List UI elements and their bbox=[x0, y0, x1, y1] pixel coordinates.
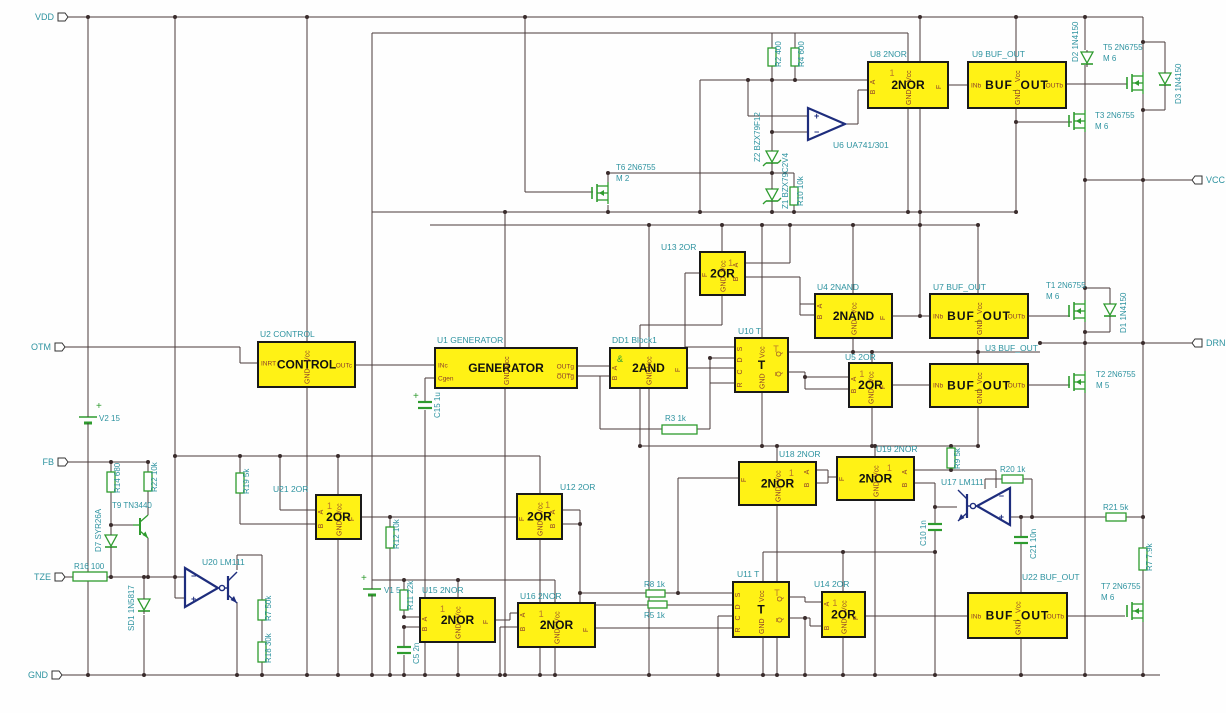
mosfet-ref-label: T1 2N6755 bbox=[1046, 281, 1086, 290]
pin-label-vcc: Vcc bbox=[538, 502, 545, 514]
block-mark: 1 bbox=[440, 604, 445, 614]
pin-label: B bbox=[851, 388, 858, 393]
diode-triangle[interactable] bbox=[766, 151, 778, 162]
mosfet-ref-label: T7 2N6755 bbox=[1101, 582, 1141, 591]
resistor-r19-5k[interactable]: R19 5k bbox=[236, 468, 251, 494]
resistor-label: R7 7.9k bbox=[1145, 542, 1154, 571]
pin-label-gnd: GND bbox=[337, 520, 344, 536]
mosfet-arrow bbox=[1134, 80, 1139, 86]
pin-label-gnd: GND bbox=[1016, 619, 1023, 635]
block-ref-label: U18 2NOR bbox=[779, 449, 821, 459]
resistor-r22-10k[interactable]: R22 10k bbox=[144, 461, 159, 492]
pin-label: B bbox=[870, 89, 877, 94]
capacitor-c21-10n[interactable]: C21 10n bbox=[1014, 529, 1038, 559]
junction-dot bbox=[370, 673, 374, 677]
junction-dot bbox=[305, 673, 309, 677]
diode-d3-1n4150[interactable]: D3 1N4150 bbox=[1159, 63, 1183, 104]
mosfet-pkg-label: M 6 bbox=[1095, 122, 1109, 131]
pin-label-vcc: Vcc bbox=[1015, 70, 1022, 82]
pin-label-gnd: GND bbox=[874, 481, 881, 497]
pin-label-vcc: Vcc bbox=[842, 600, 849, 612]
block-ref-label: U12 2OR bbox=[560, 482, 595, 492]
diode-label: D1 1N4150 bbox=[1119, 292, 1128, 333]
resistor-r16-100[interactable]: R16 100 bbox=[73, 562, 107, 581]
diode-label: D3 1N4150 bbox=[1174, 63, 1183, 104]
pin-label: F bbox=[880, 316, 887, 320]
diode-d2-1n4150[interactable]: D2 1N4150 bbox=[1071, 21, 1093, 67]
block-u16-2nor[interactable]: U16 2NOR2NORVccGND1ABF bbox=[518, 591, 595, 647]
pin-label: B bbox=[902, 482, 909, 487]
junction-dot bbox=[109, 575, 113, 579]
port-fb[interactable]: FB bbox=[42, 457, 68, 467]
mosfet-arrow bbox=[1076, 308, 1081, 314]
pin-label: A bbox=[870, 79, 877, 84]
resistor-label: R10 10k bbox=[796, 175, 805, 206]
junction-dot bbox=[716, 673, 720, 677]
pin-label: F bbox=[741, 478, 748, 482]
amp-u17-lm111[interactable]: −+U17 LM111 bbox=[941, 477, 1010, 525]
resistor-r12-10k[interactable]: R12 10k bbox=[386, 518, 401, 549]
capacitor-c10-1n[interactable]: C10 1n bbox=[919, 520, 942, 546]
pin-label: INc bbox=[438, 363, 449, 370]
resistor-body[interactable] bbox=[1002, 475, 1023, 483]
diode-label: Z2 BZX79F12 bbox=[753, 112, 762, 162]
block-mark: 1 bbox=[889, 68, 894, 78]
block-u9-buf-out[interactable]: U9 BUF_OUTBUF_OUTVccGNDINbOUTb bbox=[968, 49, 1066, 108]
block-u19-2nor[interactable]: U19 2NOR2NORVccGND1FAB bbox=[837, 444, 918, 500]
resistor-r4-600[interactable]: R4 600 bbox=[791, 41, 806, 67]
mosfet-pkg-label: M 6 bbox=[1101, 593, 1115, 602]
diode-triangle[interactable] bbox=[1159, 73, 1171, 84]
diode-triangle[interactable] bbox=[138, 599, 150, 610]
pin-label-vcc: Vcc bbox=[555, 611, 562, 623]
pin-label: B bbox=[318, 523, 325, 528]
junction-dot bbox=[86, 15, 90, 19]
junction-dot bbox=[456, 673, 460, 677]
pin-label: A bbox=[804, 469, 811, 474]
junction-dot bbox=[1141, 673, 1145, 677]
block-u11-t[interactable]: U11 TTVccGNDTSDCRQQ̅ bbox=[733, 569, 789, 637]
amp-triangle[interactable] bbox=[977, 488, 1010, 525]
block-mark: 1 bbox=[859, 369, 864, 379]
junction-dot bbox=[1083, 330, 1087, 334]
port-drn[interactable]: DRN bbox=[1192, 338, 1226, 348]
mosfet-arrow bbox=[599, 190, 604, 196]
resistor-r8-1k[interactable]: R8 1k bbox=[644, 580, 666, 597]
junction-dot bbox=[1083, 341, 1087, 345]
pin-label: A bbox=[824, 601, 831, 606]
resistor-label: R18 30k bbox=[264, 632, 273, 663]
resistor-r3-1k[interactable]: R3 1k bbox=[662, 414, 697, 434]
port-otm[interactable]: OTM bbox=[31, 342, 65, 352]
plus-sign: + bbox=[361, 573, 367, 584]
block-u7-buf-out[interactable]: U7 BUF_OUTBUF_OUTVccGNDINbOUTb bbox=[930, 282, 1028, 338]
block-title: T bbox=[758, 358, 766, 372]
junction-dot bbox=[933, 550, 937, 554]
resistor-body[interactable] bbox=[73, 572, 107, 581]
capacitor-label: C15 1u bbox=[433, 392, 442, 418]
diode-triangle[interactable] bbox=[1081, 52, 1093, 63]
resistor-label: R7 50k bbox=[264, 595, 273, 621]
junction-dot bbox=[770, 171, 774, 175]
junction-dot bbox=[402, 625, 406, 629]
pin-label: F bbox=[936, 85, 943, 89]
block-ref-label: U7 BUF_OUT bbox=[933, 282, 986, 292]
bjt-label: T9 TN3440 bbox=[112, 501, 152, 510]
resistor-label: R19 5k bbox=[242, 468, 251, 494]
pin-label-vcc: Vcc bbox=[852, 302, 859, 314]
junction-dot bbox=[976, 350, 980, 354]
junction-dot bbox=[775, 444, 779, 448]
capacitor-label: C10 1n bbox=[919, 520, 928, 546]
port-symbol[interactable] bbox=[52, 671, 62, 679]
pin-label: OUTb bbox=[1047, 614, 1065, 621]
capacitor-label: C5 2n bbox=[412, 643, 421, 664]
pin-label-gnd: GND bbox=[977, 388, 984, 404]
block-u4-2nand[interactable]: U4 2NAND2NANDVccGNDABF bbox=[815, 282, 892, 338]
junction-dot bbox=[1141, 341, 1145, 345]
port-symbol[interactable] bbox=[58, 13, 68, 21]
pin-label: C bbox=[737, 369, 744, 374]
block-ref-label: DD1 Block1 bbox=[612, 335, 657, 345]
mosfet-arrow bbox=[1076, 379, 1081, 385]
diode-label: Z1 BZX79C2V4 bbox=[781, 152, 790, 209]
diode-d1-1n4150[interactable]: D1 1N4150 bbox=[1104, 292, 1128, 333]
mosfet-t5-2n6755[interactable]: T5 2N6755M 6 bbox=[1103, 43, 1143, 94]
bjt-t9-tn3440[interactable]: T9 TN3440 bbox=[112, 501, 152, 538]
resistor-r7-7-9k[interactable]: R7 7.9k bbox=[1139, 542, 1154, 571]
junction-dot bbox=[918, 314, 922, 318]
resistor-body[interactable] bbox=[648, 601, 667, 608]
block-mark: 1 bbox=[887, 463, 892, 473]
junction-dot bbox=[708, 356, 712, 360]
pin-label: A bbox=[612, 365, 619, 370]
resistor-label: R4 600 bbox=[797, 41, 806, 67]
block-ref-label: U14 2OR bbox=[814, 579, 849, 589]
resistor-r2-400[interactable]: R2 400 bbox=[768, 41, 783, 67]
port-symbol[interactable] bbox=[55, 573, 65, 581]
junction-dot bbox=[918, 210, 922, 214]
port-label: FB bbox=[42, 457, 54, 467]
junction-dot bbox=[803, 375, 807, 379]
svg-text:−: − bbox=[191, 571, 196, 581]
pin-label-gnd: GND bbox=[776, 486, 783, 502]
pin-label-gnd: GND bbox=[1015, 89, 1022, 105]
pin-label: D bbox=[735, 604, 742, 609]
pin-label: D bbox=[737, 357, 744, 362]
port-vdd[interactable]: VDD bbox=[35, 12, 68, 22]
mosfet-t6-2n6755[interactable]: T6 2N6755M 2 bbox=[592, 163, 656, 204]
mosfet-pkg-label: M 2 bbox=[616, 174, 630, 183]
block-u3-buf-out[interactable]: U3 BUF_OUTBUF_OUTVccGNDINbOUTb bbox=[930, 343, 1038, 407]
port-tze[interactable]: TZE bbox=[34, 572, 65, 582]
resistor-label: R11 22k bbox=[406, 580, 415, 610]
pin-label-vcc: Vcc bbox=[869, 371, 876, 383]
junction-dot bbox=[976, 444, 980, 448]
pin-label: Q bbox=[776, 351, 783, 357]
pin-label: B bbox=[824, 625, 831, 630]
junction-dot bbox=[173, 454, 177, 458]
block-u5-2or[interactable]: U5 2OR2ORVccGND1ABF bbox=[845, 352, 892, 407]
svg-text:+: + bbox=[814, 111, 819, 121]
battery-label: V1 5 bbox=[384, 586, 401, 595]
pin-label: OUTg bbox=[557, 364, 575, 371]
junction-dot bbox=[503, 210, 507, 214]
diode-d7-syr26a[interactable]: D7 SYR26A bbox=[94, 508, 117, 552]
resistor-body[interactable] bbox=[1106, 513, 1126, 521]
junction-dot bbox=[336, 673, 340, 677]
mosfet-pkg-label: M 5 bbox=[1096, 381, 1110, 390]
resistor-label: R20 1k bbox=[1000, 465, 1026, 474]
diode-label: D2 1N4150 bbox=[1071, 21, 1080, 62]
junction-dot bbox=[1141, 178, 1145, 182]
resistor-r14-680[interactable]: R14 680 bbox=[107, 462, 122, 493]
port-symbol[interactable] bbox=[55, 343, 65, 351]
resistor-label: R3 1k bbox=[665, 414, 687, 423]
battery-v2-15[interactable]: +V2 15 bbox=[79, 401, 120, 428]
pin-label-vcc: Vcc bbox=[776, 470, 783, 482]
junction-dot bbox=[918, 223, 922, 227]
junction-dot bbox=[770, 130, 774, 134]
junction-dot bbox=[851, 223, 855, 227]
schematic-canvas: VDDOTMFBTZEGNDVCCDRNU8 2NOR2NORVccGND1AB… bbox=[0, 0, 1226, 713]
junction-dot bbox=[792, 210, 796, 214]
pin-label: S bbox=[735, 592, 742, 597]
junction-dot bbox=[760, 223, 764, 227]
resistor-r18-30k[interactable]: R18 30k bbox=[258, 632, 273, 663]
junction-dot bbox=[933, 505, 937, 509]
junction-dot bbox=[647, 223, 651, 227]
resistor-label: R12 10k bbox=[392, 518, 401, 549]
junction-dot bbox=[1014, 120, 1018, 124]
junction-dot bbox=[388, 515, 392, 519]
pin-label-vcc: Vcc bbox=[906, 70, 913, 82]
port-label: GND bbox=[28, 670, 49, 680]
block-ref-label: U3 BUF_OUT bbox=[985, 343, 1038, 353]
junction-dot bbox=[498, 673, 502, 677]
junction-dot bbox=[538, 673, 542, 677]
pin-label: B bbox=[733, 276, 740, 281]
junction-dot bbox=[676, 591, 680, 595]
schematic-svg: VDDOTMFBTZEGNDVCCDRNU8 2NOR2NORVccGND1AB… bbox=[0, 0, 1226, 713]
pin-label: OUTb bbox=[1008, 314, 1026, 321]
resistor-label: R8 1k bbox=[644, 580, 666, 589]
pin-label: B bbox=[550, 523, 557, 528]
amp-label: U17 LM111 bbox=[941, 477, 984, 487]
resistor-r21-5k[interactable]: R21 5k bbox=[1103, 503, 1129, 521]
junction-dot bbox=[746, 78, 750, 82]
junction-dot bbox=[770, 78, 774, 82]
mosfet-arrow bbox=[1076, 118, 1081, 124]
resistor-r10-10k[interactable]: R10 10k bbox=[790, 175, 805, 206]
pin-label-gnd: GND bbox=[555, 628, 562, 644]
block-u18-2nor[interactable]: U18 2NOR2NORVccGND1FAB bbox=[739, 449, 821, 505]
junction-dot bbox=[1038, 341, 1042, 345]
junction-dot bbox=[793, 78, 797, 82]
pin-label-vcc: Vcc bbox=[759, 590, 766, 602]
mosfet-pkg-label: M 6 bbox=[1046, 292, 1060, 301]
junction-dot bbox=[720, 223, 724, 227]
junction-dot bbox=[109, 523, 113, 527]
amp-triangle[interactable] bbox=[185, 568, 218, 607]
port-vcc[interactable]: VCC bbox=[1192, 175, 1226, 185]
mosfet-arrow bbox=[1134, 608, 1139, 614]
block-u21-2or[interactable]: U21 2OR2ORVccGND1ABF bbox=[273, 484, 361, 539]
port-symbol[interactable] bbox=[1192, 176, 1202, 184]
capacitor-c5-2n[interactable]: C5 2n bbox=[397, 643, 421, 664]
junction-dot bbox=[1030, 515, 1034, 519]
diode-sd1-1n5817[interactable]: SD1 1N5817 bbox=[127, 585, 150, 631]
port-label: VCC bbox=[1206, 175, 1226, 185]
pin-label-vcc: Vcc bbox=[977, 302, 984, 314]
junction-dot bbox=[578, 591, 582, 595]
mosfet-ref-label: T2 2N6755 bbox=[1096, 370, 1136, 379]
block-ref-label: U11 T bbox=[737, 569, 759, 579]
junction-dot bbox=[761, 673, 765, 677]
block-dd1-block1[interactable]: DD1 Block12ANDVccGND&ABF bbox=[610, 335, 687, 388]
pin-label: INRT bbox=[261, 361, 276, 368]
resistor-label: R21 5k bbox=[1103, 503, 1129, 512]
diode-label: SD1 1N5817 bbox=[127, 585, 136, 631]
block-ref-label: U9 BUF_OUT bbox=[972, 49, 1025, 59]
pin-label-gnd: GND bbox=[305, 368, 312, 384]
port-symbol[interactable] bbox=[58, 458, 68, 466]
resistor-r20-1k[interactable]: R20 1k bbox=[1000, 465, 1026, 483]
junction-dot bbox=[503, 673, 507, 677]
svg-text:+: + bbox=[999, 512, 1004, 522]
block-u12-2or[interactable]: U12 2OR2ORVccGND1FAB bbox=[517, 482, 595, 539]
junction-dot bbox=[841, 550, 845, 554]
junction-dot bbox=[976, 223, 980, 227]
amp-u6-ua741-301[interactable]: +−U6 UA741/301 bbox=[808, 108, 889, 150]
pin-label-gnd: GND bbox=[760, 373, 767, 389]
block-ref-label: U2 CONTROL bbox=[260, 329, 315, 339]
pin-label-gnd: GND bbox=[456, 623, 463, 639]
resistor-label: R16 100 bbox=[74, 562, 105, 571]
battery-v1-5[interactable]: +V1 5 bbox=[361, 573, 401, 600]
block-ref-label: U16 2NOR bbox=[520, 591, 562, 601]
junction-dot bbox=[638, 444, 642, 448]
block-mark: 1 bbox=[539, 609, 544, 619]
resistor-label: R2 400 bbox=[774, 41, 783, 67]
port-symbol[interactable] bbox=[1192, 339, 1202, 347]
pin-label: C bbox=[735, 615, 742, 620]
resistor-label: R14 680 bbox=[113, 462, 122, 493]
junction-dot bbox=[423, 673, 427, 677]
capacitor-label: C21 10n bbox=[1029, 529, 1038, 559]
pin-label: A bbox=[902, 469, 909, 474]
block-u1-generator[interactable]: U1 GENERATORGENERATORVccGNDINcCgenOUTgO̅… bbox=[435, 335, 577, 388]
pin-label: Q̅ bbox=[776, 617, 784, 623]
pin-label: B bbox=[520, 626, 527, 631]
svg-text:−: − bbox=[814, 127, 819, 137]
block-u13-2or[interactable]: U13 2OR2ORVccGND1FAB bbox=[661, 242, 745, 295]
pin-label: INb bbox=[971, 83, 982, 90]
pin-label: F bbox=[349, 517, 356, 521]
block-ref-label: U13 2OR bbox=[661, 242, 696, 252]
bjt-arrow bbox=[143, 532, 149, 539]
mosfet-t2-2n6755[interactable]: T2 2N6755M 5 bbox=[1069, 370, 1136, 393]
block-u15-2nor[interactable]: U15 2NOR2NORVccGND1ABF bbox=[420, 585, 495, 642]
pin-label: R bbox=[737, 382, 744, 387]
diode-triangle[interactable] bbox=[105, 535, 117, 546]
block-u2-control[interactable]: U2 CONTROLCONTROLVccGNDINRTOUTc bbox=[258, 329, 355, 387]
pin-label: F bbox=[519, 517, 526, 521]
pin-label: B bbox=[804, 482, 811, 487]
mosfet-t3-2n6755[interactable]: T3 2N6755M 6 bbox=[1069, 110, 1135, 132]
resistor-r11-22k[interactable]: R11 22k bbox=[400, 580, 415, 610]
pin-label-gnd: GND bbox=[647, 369, 654, 385]
block-ref-label: U15 2NOR bbox=[422, 585, 464, 595]
pin-label-vcc: Vcc bbox=[721, 260, 728, 272]
plus-sign: + bbox=[96, 401, 102, 412]
pin-label: A bbox=[520, 612, 527, 617]
block-u22-buf-out[interactable]: U22 BUF_OUTBUF_OUTVccGNDINbOUTb bbox=[968, 572, 1080, 638]
capacitor-c15-1u[interactable]: +C15 1u bbox=[413, 391, 442, 418]
junction-dot bbox=[1141, 515, 1145, 519]
diode-triangle[interactable] bbox=[1104, 304, 1116, 315]
junction-dot bbox=[1083, 15, 1087, 19]
block-u14-2or[interactable]: U14 2OR2ORVccGND1ABF bbox=[814, 579, 865, 637]
block-mark: & bbox=[617, 354, 623, 364]
block-mark: 1 bbox=[545, 500, 550, 510]
pin-label: F bbox=[483, 620, 490, 624]
resistor-r7-50k[interactable]: R7 50k bbox=[258, 595, 273, 621]
block-ref-label: U22 BUF_OUT bbox=[1022, 572, 1080, 582]
mosfet-pkg-label: M 6 bbox=[1103, 54, 1117, 63]
pin-label: O̅U̅T̅g̅ bbox=[557, 373, 575, 381]
resistor-body[interactable] bbox=[662, 425, 697, 434]
junction-dot bbox=[1014, 210, 1018, 214]
block-title: T bbox=[757, 603, 765, 617]
junction-dot bbox=[402, 615, 406, 619]
junction-dot bbox=[698, 210, 702, 214]
pin-label: OUTb bbox=[1046, 83, 1064, 90]
junction-dot bbox=[803, 616, 807, 620]
battery-label: V2 15 bbox=[99, 414, 120, 423]
junction-dot bbox=[553, 673, 557, 677]
resistor-r9-5k[interactable]: R9 5k bbox=[947, 447, 962, 469]
resistor-r5-1k[interactable]: R5 1k bbox=[644, 601, 667, 620]
pin-label: Q̅ bbox=[775, 371, 783, 377]
junction-dot bbox=[1083, 178, 1087, 182]
pin-label-gnd: GND bbox=[906, 89, 913, 105]
pin-label-vcc: Vcc bbox=[874, 465, 881, 477]
junction-dot bbox=[388, 673, 392, 677]
diode-z1-bzx79c2v4[interactable]: Z1 BZX79C2V4 bbox=[763, 152, 790, 209]
pin-label-vcc: Vcc bbox=[760, 346, 767, 358]
pin-label-gnd: GND bbox=[842, 618, 849, 634]
junction-dot bbox=[305, 15, 309, 19]
junction-dot bbox=[770, 210, 774, 214]
block-ref-label: U19 2NOR bbox=[876, 444, 918, 454]
junction-dot bbox=[86, 673, 90, 677]
block-mark: 1 bbox=[832, 598, 837, 608]
junction-dot bbox=[803, 673, 807, 677]
junction-dot bbox=[873, 673, 877, 677]
junction-dot bbox=[456, 578, 460, 582]
diode-z2-bzx79f12[interactable]: Z2 BZX79F12 bbox=[753, 112, 781, 166]
diode-triangle[interactable] bbox=[766, 189, 778, 200]
junction-dot bbox=[173, 575, 177, 579]
port-gnd[interactable]: GND bbox=[28, 670, 62, 680]
junction-dot bbox=[933, 673, 937, 677]
resistor-body[interactable] bbox=[646, 590, 665, 597]
junction-dot bbox=[173, 15, 177, 19]
pin-label-gnd: GND bbox=[759, 618, 766, 634]
amp-u20-lm111[interactable]: −+U20 LM111 bbox=[185, 557, 245, 607]
pin-label: B bbox=[817, 314, 824, 319]
